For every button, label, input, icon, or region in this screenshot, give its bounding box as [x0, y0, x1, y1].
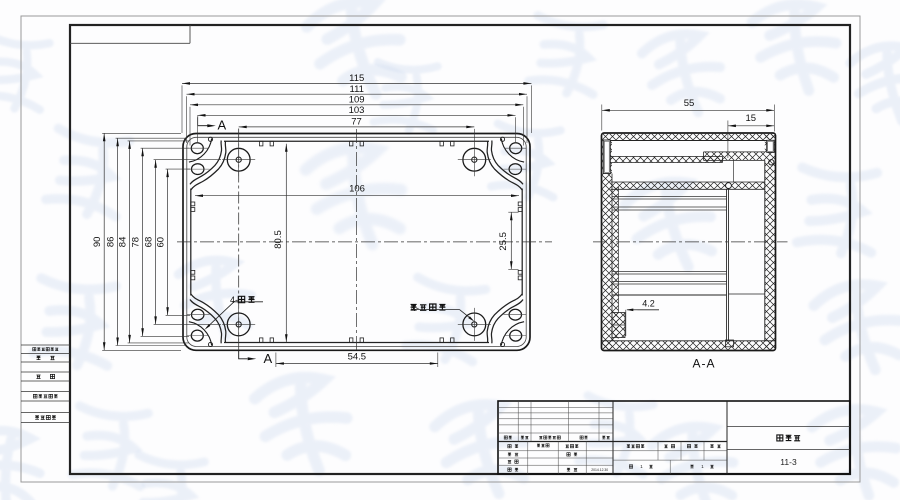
svg-text:115: 115: [349, 73, 364, 84]
svg-text:106: 106: [349, 184, 365, 195]
svg-text:55: 55: [684, 98, 695, 109]
svg-text:111: 111: [350, 84, 364, 95]
svg-text:86: 86: [105, 237, 116, 248]
svg-text:15: 15: [746, 113, 757, 124]
svg-text:109: 109: [349, 95, 365, 106]
svg-text:2014.12.30: 2014.12.30: [591, 468, 608, 472]
svg-text:68: 68: [143, 237, 154, 248]
svg-text:84: 84: [117, 237, 128, 248]
svg-text:90: 90: [92, 237, 103, 248]
svg-text:A: A: [264, 351, 273, 366]
svg-text:A-A: A-A: [692, 357, 715, 371]
svg-text:4-: 4-: [230, 295, 238, 305]
svg-text:11-3: 11-3: [780, 457, 797, 467]
svg-text:103: 103: [349, 105, 365, 116]
svg-text:78: 78: [130, 237, 141, 248]
svg-text:54.5: 54.5: [348, 351, 367, 362]
svg-text:25.5: 25.5: [498, 232, 509, 251]
svg-text:A: A: [218, 117, 227, 132]
svg-text:60: 60: [155, 237, 166, 248]
svg-text:80.5: 80.5: [273, 230, 284, 249]
svg-text:4.2: 4.2: [642, 299, 655, 309]
svg-text:77: 77: [351, 117, 362, 128]
